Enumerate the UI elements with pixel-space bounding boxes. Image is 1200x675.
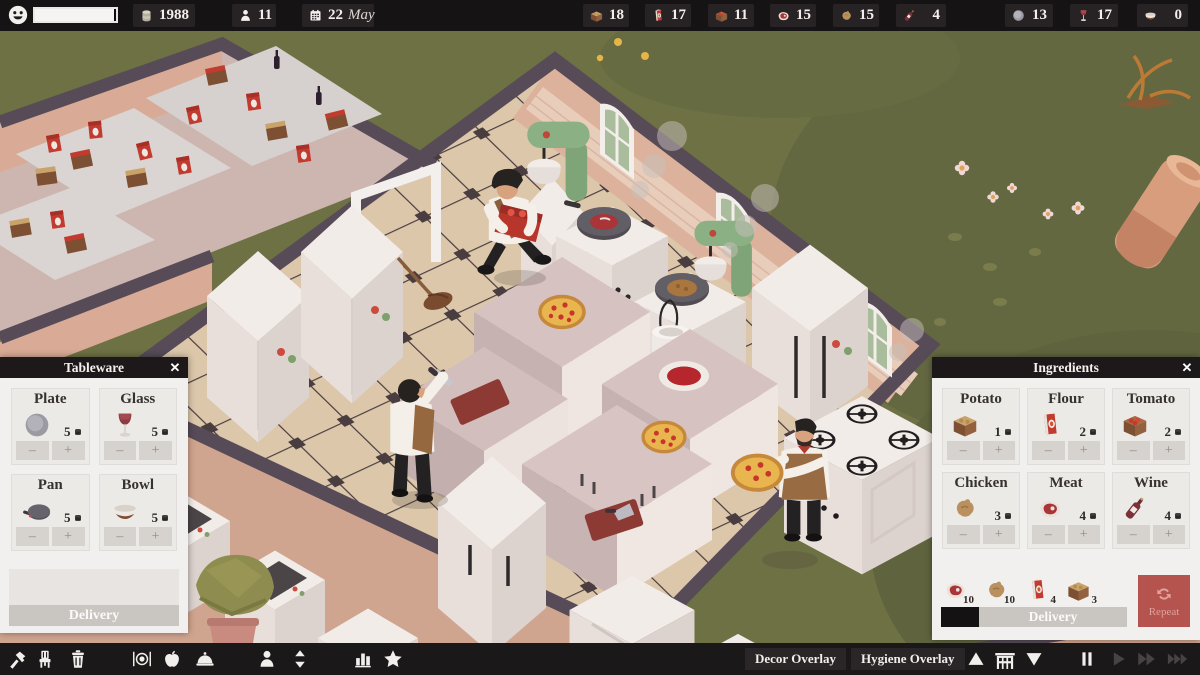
queue-item-flour: 4 xyxy=(1024,576,1051,603)
cost-icon xyxy=(1003,511,1013,521)
wine-icon xyxy=(902,8,917,23)
play-icon[interactable] xyxy=(1108,648,1128,670)
satisfaction-progress-bar xyxy=(33,7,118,23)
staff-indicator: 11 xyxy=(232,4,276,27)
card-title: Chicken xyxy=(943,475,1019,492)
cost-icon xyxy=(1088,511,1098,521)
cost-icon xyxy=(1088,427,1098,437)
calendar-icon xyxy=(308,8,323,23)
screen: 1988 11 22 May 18 17 11 15 15 4 13 17 xyxy=(0,0,1200,675)
queue-count: 10 xyxy=(963,594,974,606)
satisfaction-icon xyxy=(7,4,29,26)
close-icon[interactable]: ✕ xyxy=(1177,357,1197,378)
card-count: 2 xyxy=(1080,424,1087,440)
tomato-icon xyxy=(714,8,729,23)
resource-meat: 15 xyxy=(770,4,816,27)
reviews-star-icon[interactable] xyxy=(382,648,404,670)
ingredient-card-potato: Potato 1 –+ xyxy=(942,388,1020,465)
card-title: Tomato xyxy=(1113,391,1189,408)
queue-item-potato: 3 xyxy=(1065,576,1092,603)
cost-icon xyxy=(1173,427,1183,437)
meat-count: 15 xyxy=(796,7,811,24)
wine-count: 4 xyxy=(933,7,941,24)
hygiene-overlay-button[interactable]: Hygiene Overlay xyxy=(851,648,965,670)
card-title: Wine xyxy=(1113,475,1189,492)
queue-count: 10 xyxy=(1004,594,1015,606)
plate-icon xyxy=(1011,8,1026,23)
repeat-button[interactable]: Repeat xyxy=(1138,575,1190,627)
minus-button[interactable]: – xyxy=(947,441,980,460)
flour-icon xyxy=(651,8,666,23)
staff-priority-sort-icon[interactable] xyxy=(289,648,311,670)
bowl-icon xyxy=(1143,8,1158,23)
ingredient-card-flour: Flour 2 –+ xyxy=(1027,388,1105,465)
minus-button[interactable]: – xyxy=(104,441,137,460)
glass-count: 17 xyxy=(1097,7,1112,24)
minus-button[interactable]: – xyxy=(104,527,137,546)
bowl-icon xyxy=(109,495,141,527)
minus-button[interactable]: – xyxy=(1117,441,1150,460)
tableware-dining-icon[interactable] xyxy=(131,648,153,670)
floor-up-icon[interactable] xyxy=(966,648,986,670)
top-bar: 1988 11 22 May 18 17 11 15 15 4 13 17 xyxy=(0,0,1200,31)
card-title: Glass xyxy=(100,391,177,408)
bowl-count: 0 xyxy=(1175,7,1183,24)
ingredients-apple-icon[interactable] xyxy=(161,648,183,670)
cost-icon xyxy=(160,427,170,437)
plate-icon xyxy=(21,409,53,441)
card-title: Flour xyxy=(1028,391,1104,408)
tableware-card-bowl: Bowl 5 –+ xyxy=(99,474,178,551)
close-icon[interactable]: ✕ xyxy=(165,357,185,378)
tableware-card-pan: Pan 5 –+ xyxy=(11,474,90,551)
tableware-delivery-button[interactable]: Delivery xyxy=(9,605,179,626)
card-title: Pan xyxy=(12,477,89,494)
card-count: 4 xyxy=(1165,508,1172,524)
queue-count: 3 xyxy=(1092,594,1098,606)
queue-item-chicken: 10 xyxy=(983,576,1010,603)
card-count: 5 xyxy=(64,424,71,440)
resource-flour: 17 xyxy=(645,4,691,27)
plus-button[interactable]: + xyxy=(983,525,1016,544)
plus-button[interactable]: + xyxy=(52,527,85,546)
tableware-panel-title: Tableware xyxy=(64,360,124,376)
fast-forward-icon[interactable] xyxy=(1134,648,1159,670)
coins-icon xyxy=(139,8,154,23)
pizza xyxy=(643,422,685,451)
plus-button[interactable]: + xyxy=(1153,525,1186,544)
floor-down-icon[interactable] xyxy=(1024,648,1044,670)
cost-icon xyxy=(1003,427,1013,437)
card-count: 5 xyxy=(152,424,159,440)
fastest-icon[interactable] xyxy=(1163,648,1192,670)
flour-icon xyxy=(1024,576,1051,603)
glass-icon xyxy=(109,409,141,441)
resource-glass: 17 xyxy=(1070,4,1118,27)
minus-button[interactable]: – xyxy=(16,441,49,460)
statistics-chart-icon[interactable] xyxy=(352,648,374,670)
person-icon xyxy=(238,8,253,23)
tomato-icon xyxy=(1120,409,1150,439)
furniture-chair-icon[interactable] xyxy=(34,648,56,670)
ingredients-panel-title: Ingredients xyxy=(1033,360,1099,376)
ingredients-delivery-button[interactable]: Delivery xyxy=(979,607,1127,627)
staff-person-icon[interactable] xyxy=(256,648,278,670)
card-count: 1 xyxy=(995,424,1002,440)
card-count: 5 xyxy=(152,510,159,526)
money-value: 1988 xyxy=(159,7,189,24)
decor-overlay-button[interactable]: Decor Overlay xyxy=(745,648,846,670)
resource-wine: 4 xyxy=(896,4,946,27)
minus-button[interactable]: – xyxy=(1117,525,1150,544)
delivery-row: Delivery xyxy=(941,607,1127,627)
resource-plate: 13 xyxy=(1005,4,1053,27)
meat-icon xyxy=(1035,493,1065,523)
ingredient-card-meat: Meat 4 –+ xyxy=(1027,472,1105,549)
potato-count: 18 xyxy=(609,7,624,24)
sauce-plate[interactable] xyxy=(659,361,709,391)
potato-icon xyxy=(589,8,604,23)
ingredient-card-chicken: Chicken 3 –+ xyxy=(942,472,1020,549)
meat-icon xyxy=(776,8,791,23)
cost-icon xyxy=(73,513,83,523)
ingredient-card-wine: Wine 4 –+ xyxy=(1112,472,1190,549)
plus-button[interactable]: + xyxy=(52,441,85,460)
potato-icon xyxy=(1065,576,1092,603)
plus-button[interactable]: + xyxy=(1068,525,1101,544)
tableware-delivery-queue xyxy=(9,569,179,605)
bottom-toolbar: Decor Overlay Hygiene Overlay xyxy=(0,643,1200,675)
cost-icon xyxy=(1173,511,1183,521)
repeat-icon xyxy=(1154,584,1174,604)
delivery-queue: 10 10 4 3 xyxy=(942,576,1092,603)
resource-chicken: 15 xyxy=(833,4,879,27)
resource-bowl: 0 xyxy=(1137,4,1188,27)
tomato-count: 11 xyxy=(734,7,748,24)
chicken-count: 15 xyxy=(859,7,874,24)
ingredient-card-tomato: Tomato 2 –+ xyxy=(1112,388,1190,465)
card-title: Meat xyxy=(1028,475,1104,492)
build-hammer-icon[interactable] xyxy=(7,648,29,670)
card-title: Potato xyxy=(943,391,1019,408)
pizza xyxy=(540,297,584,328)
building-icon xyxy=(991,646,1019,672)
plus-button[interactable]: + xyxy=(983,441,1016,460)
queue-count: 4 xyxy=(1051,594,1057,606)
tableware-card-glass: Glass 5 –+ xyxy=(99,388,178,465)
cost-icon xyxy=(73,427,83,437)
money-indicator: 1988 xyxy=(133,4,195,27)
card-count: 4 xyxy=(1080,508,1087,524)
plus-button[interactable]: + xyxy=(1153,441,1186,460)
resource-potato: 18 xyxy=(583,4,629,27)
plus-button[interactable]: + xyxy=(139,441,172,460)
demolish-trash-icon[interactable] xyxy=(67,648,89,670)
card-title: Bowl xyxy=(100,477,177,494)
date-month: May xyxy=(348,7,375,24)
delivery-progress xyxy=(941,607,979,627)
plus-button[interactable]: + xyxy=(1068,441,1101,460)
minus-button[interactable]: – xyxy=(947,525,980,544)
plate-count: 13 xyxy=(1032,7,1047,24)
chicken-icon xyxy=(950,493,980,523)
pause-icon[interactable] xyxy=(1077,648,1097,670)
minus-button[interactable]: – xyxy=(1032,525,1065,544)
repeat-label: Repeat xyxy=(1149,606,1180,618)
tableware-panel-header: Tableware ✕ xyxy=(0,357,188,378)
tableware-panel: Tableware ✕ Plate 5 –+ Glass 5 –+ Pan 5 … xyxy=(0,357,188,633)
date-indicator: 22 May xyxy=(302,4,374,27)
ingredients-panel-header: Ingredients ✕ xyxy=(932,357,1200,378)
glass-icon xyxy=(1076,8,1091,23)
flour-icon xyxy=(1035,409,1065,439)
minus-button[interactable]: – xyxy=(16,527,49,546)
pan-icon xyxy=(21,495,53,527)
date-day: 22 xyxy=(328,7,343,24)
minus-button[interactable]: – xyxy=(1032,441,1065,460)
wine-icon xyxy=(1120,493,1150,523)
flour-count: 17 xyxy=(671,7,686,24)
card-count: 5 xyxy=(64,510,71,526)
card-count: 2 xyxy=(1165,424,1172,440)
potato-icon xyxy=(950,409,980,439)
tableware-card-plate: Plate 5 –+ xyxy=(11,388,90,465)
staff-count: 11 xyxy=(258,7,272,24)
menu-cloche-icon[interactable] xyxy=(194,648,216,670)
chicken-icon xyxy=(839,8,854,23)
plus-button[interactable]: + xyxy=(139,527,172,546)
card-count: 3 xyxy=(995,508,1002,524)
queue-item-meat: 10 xyxy=(942,576,969,603)
resource-tomato: 11 xyxy=(708,4,754,27)
card-title: Plate xyxy=(12,391,89,408)
ingredients-panel: Ingredients ✕ Potato 1 –+ Flour 2 –+ Tom… xyxy=(932,357,1200,640)
cost-icon xyxy=(160,513,170,523)
